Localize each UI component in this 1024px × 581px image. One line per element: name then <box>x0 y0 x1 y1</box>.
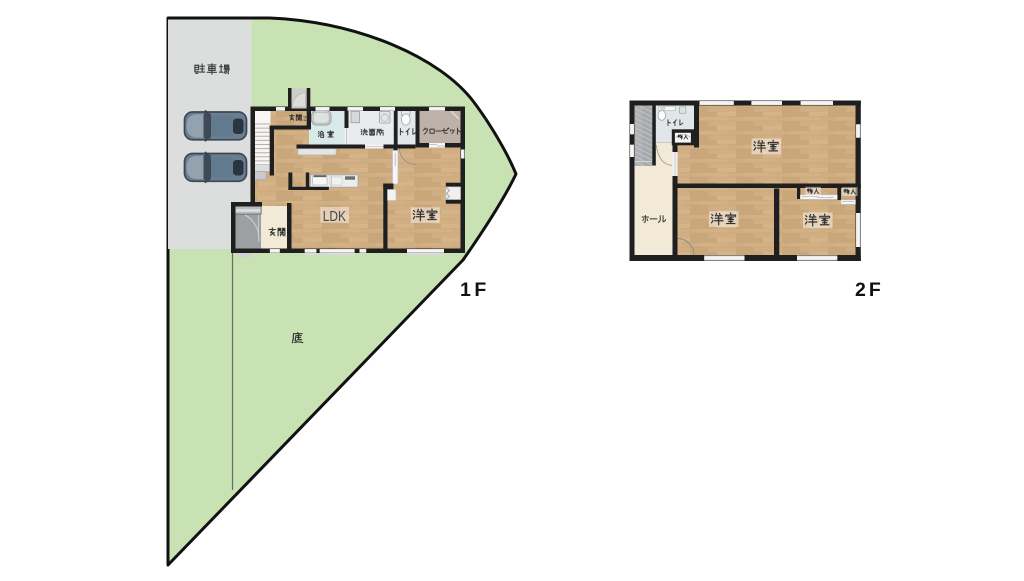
svg-text:1F: 1F <box>460 279 490 301</box>
svg-text:LDK: LDK <box>323 209 346 225</box>
svg-text:2F: 2F <box>855 279 884 301</box>
svg-text:2: 2 <box>303 116 307 123</box>
